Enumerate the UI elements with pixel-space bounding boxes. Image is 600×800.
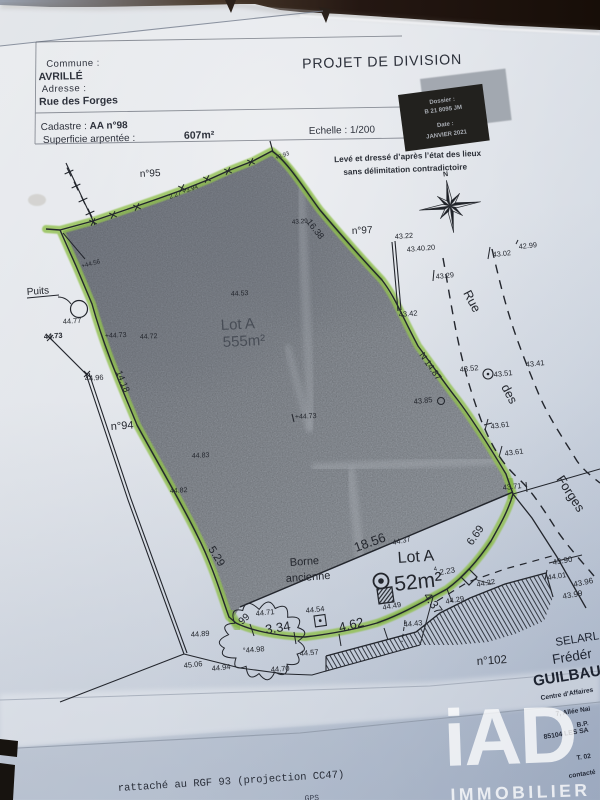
svg-text:Adresse :: Adresse : xyxy=(42,83,87,95)
svg-text:43.22: 43.22 xyxy=(395,231,414,241)
svg-text:44.96: 44.96 xyxy=(85,373,104,383)
svg-text:42.99: 42.99 xyxy=(518,240,537,251)
svg-text:43.02: 43.02 xyxy=(492,248,511,259)
svg-text:iAD: iAD xyxy=(442,689,577,783)
svg-text:n°97: n°97 xyxy=(352,225,374,237)
svg-text:44.77: 44.77 xyxy=(63,316,82,326)
svg-text:Rue des Forges: Rue des Forges xyxy=(39,94,118,108)
svg-text:+44.73: +44.73 xyxy=(105,332,127,340)
svg-text:Superficie arpentée :: Superficie arpentée : xyxy=(43,133,136,146)
svg-text:43.42: 43.42 xyxy=(398,308,417,319)
svg-text:n°102: n°102 xyxy=(476,654,507,668)
svg-text:Puits: Puits xyxy=(26,285,49,298)
svg-text:607m²: 607m² xyxy=(184,129,215,142)
svg-text:44.89: 44.89 xyxy=(191,629,210,639)
svg-text:44.82: 44.82 xyxy=(170,487,188,495)
svg-text:555m²: 555m² xyxy=(222,332,265,351)
svg-text:Commune :: Commune : xyxy=(46,58,100,70)
svg-text:44.73: 44.73 xyxy=(44,331,63,341)
svg-text:Echelle : 1/200: Echelle : 1/200 xyxy=(309,124,376,137)
svg-text:n°95: n°95 xyxy=(140,168,162,180)
svg-text:43.29: 43.29 xyxy=(435,270,454,281)
svg-text:Borne: Borne xyxy=(289,555,319,569)
svg-text:N: N xyxy=(443,171,449,179)
svg-text:44.72: 44.72 xyxy=(140,333,158,341)
svg-text:°44.98: °44.98 xyxy=(242,644,264,655)
svg-text:44.57: 44.57 xyxy=(299,647,318,658)
svg-text:AVRILLÉ: AVRILLÉ xyxy=(38,69,82,83)
svg-text:44.53: 44.53 xyxy=(231,290,249,298)
svg-text:Cadastre : AA n°98: Cadastre : AA n°98 xyxy=(41,120,129,133)
svg-text:n°94: n°94 xyxy=(110,419,134,433)
svg-text:+44.73: +44.73 xyxy=(295,413,317,421)
svg-text:…GPS: …GPS xyxy=(300,794,320,800)
svg-text:Lot A: Lot A xyxy=(397,547,435,567)
svg-text:44.83: 44.83 xyxy=(192,452,210,460)
svg-text:Lot A: Lot A xyxy=(220,315,255,334)
svg-text:44.70: 44.70 xyxy=(271,664,290,674)
